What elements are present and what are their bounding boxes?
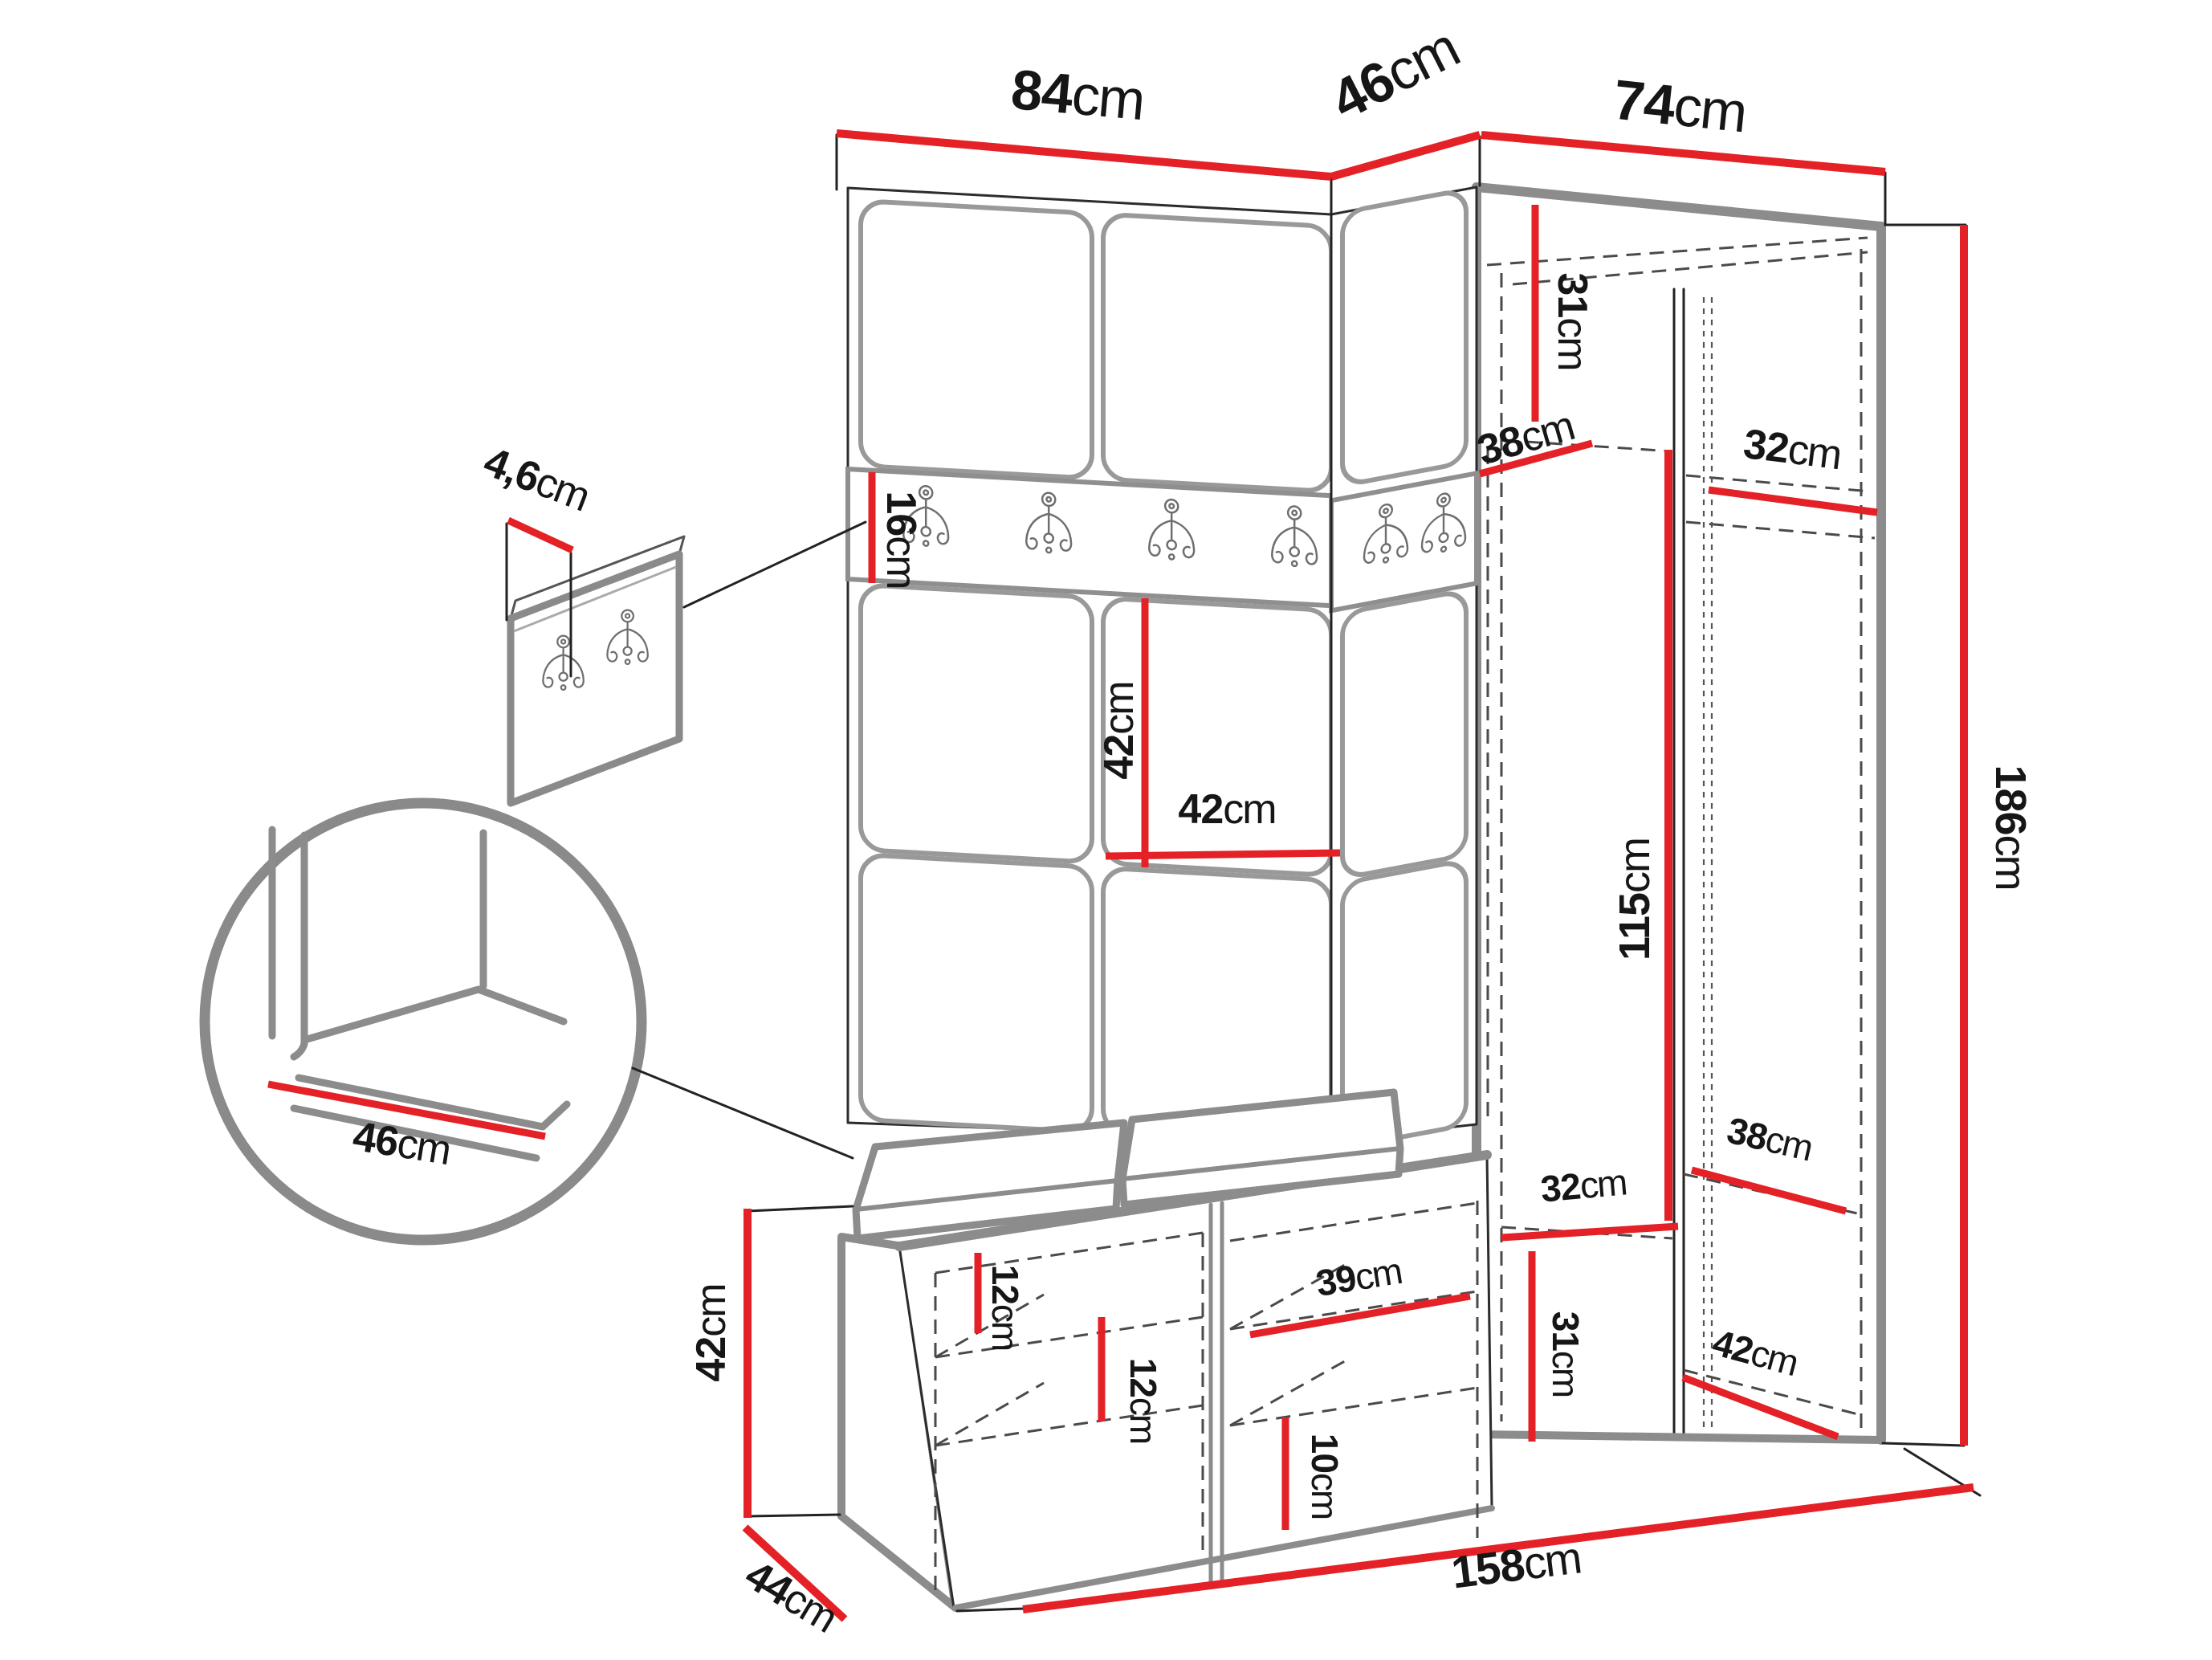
floor-line-right (1883, 1443, 1964, 1446)
dim-label-height-186: 186cm (1986, 765, 2035, 889)
padded-tile (861, 854, 1092, 1132)
dim-line-46 (1331, 135, 1480, 177)
dim-label-rail-16: 16cm (878, 491, 924, 588)
dim-label-bottom-31: 31cm (1545, 1311, 1587, 1397)
dim-label-bench-12-b: 12cm (1122, 1358, 1164, 1444)
dim-label-top-46: 46cm (1322, 16, 1469, 132)
padded-tile (861, 585, 1092, 863)
dim-label-bench-42: 42cm (688, 1284, 735, 1381)
left-face-tiles (848, 200, 1331, 1145)
bench-height-extension-top (748, 1206, 853, 1211)
dim-label-width-158: 158cm (1448, 1532, 1583, 1597)
dim-line-42-horizontal (1106, 853, 1340, 856)
bench-height-extension-bottom (748, 1515, 840, 1516)
dim-label-bottom-32: 32cm (1539, 1160, 1628, 1209)
dim-label-mid-42-vertical: 42cm (1096, 682, 1143, 779)
padded-tile (861, 201, 1092, 479)
wall-hook-panel (511, 536, 684, 803)
corner-face-tiles (1331, 187, 1477, 1150)
dim-label-hang-115: 115cm (1611, 838, 1659, 961)
padded-tile (1342, 590, 1466, 879)
panel-front-face (511, 554, 679, 803)
dim-label-top-74: 74cm (1611, 68, 1749, 145)
extension-158-left (957, 1609, 1025, 1611)
dim-line-4-6 (508, 520, 572, 550)
bench (841, 1092, 1492, 1608)
dim-label-bench-10: 10cm (1304, 1434, 1346, 1519)
dimension-diagram: 84cm46cm74cm4,6cm16cm31cm38cm32cm42cm42c… (0, 0, 2212, 1660)
dim-label-top-84: 84cm (1008, 58, 1146, 132)
panel-leader-line (684, 522, 866, 607)
detail-circle (205, 803, 642, 1240)
dim-line-84 (837, 133, 1331, 177)
corner-panel-section (1331, 187, 1488, 1150)
wardrobe-bottom-edge (1477, 1434, 1881, 1440)
dim-label-panel-46mm: 4,6cm (478, 438, 595, 520)
dim-label-bench-12-a: 12cm (984, 1265, 1026, 1351)
dim-label-shelf-31-top: 31cm (1549, 272, 1595, 369)
dim-line-74 (1481, 135, 1885, 172)
detail-leader-line (633, 1068, 853, 1158)
padded-tile (1103, 214, 1331, 492)
wardrobe-interior-bg (1481, 191, 1878, 1436)
padded-tile (1342, 190, 1466, 486)
left-panel-section (848, 188, 1331, 1145)
dim-label-mid-42-horizontal: 42cm (1178, 786, 1275, 833)
diagram-canvas: 84cm46cm74cm4,6cm16cm31cm38cm32cm42cm42c… (0, 0, 2212, 1660)
